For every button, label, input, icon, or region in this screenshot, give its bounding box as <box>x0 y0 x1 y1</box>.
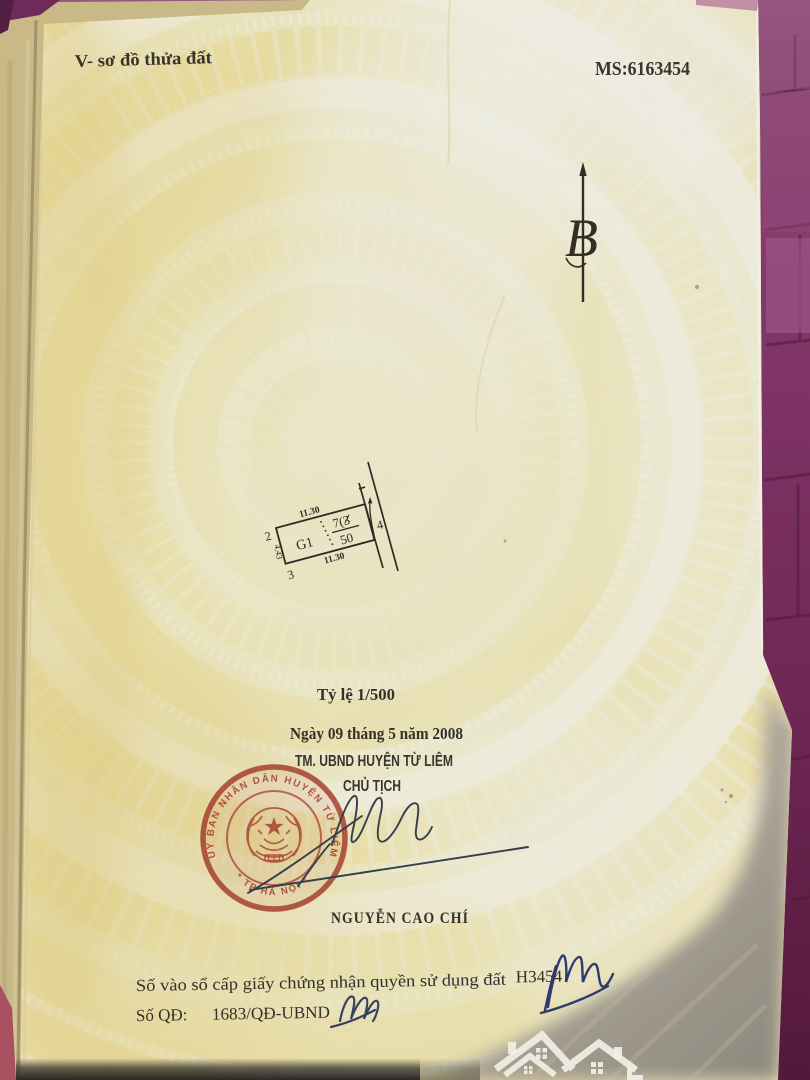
svg-text:NGUYỄN CAO CHÍ: NGUYỄN CAO CHÍ <box>331 909 469 927</box>
svg-text:V- sơ đồ thửa đất: V- sơ đồ thửa đất <box>75 47 213 71</box>
svg-text:Ngày 09 tháng 5 năm 2008: Ngày 09 tháng 5 năm 2008 <box>290 724 463 743</box>
svg-text:B: B <box>565 208 598 268</box>
svg-text:MS:6163454: MS:6163454 <box>595 58 690 80</box>
svg-text:1683/QĐ-UBND: 1683/QĐ-UBND <box>212 1003 330 1024</box>
svg-text:Tỷ lệ 1/500: Tỷ lệ 1/500 <box>317 685 395 704</box>
svg-text:CHỦ TỊCH: CHỦ TỊCH <box>343 777 401 795</box>
svg-text:TM. UBND HUYỆN TỪ LIÊM: TM. UBND HUYỆN TỪ LIÊM <box>295 752 453 770</box>
svg-text:Số QĐ:: Số QĐ: <box>136 1005 188 1025</box>
